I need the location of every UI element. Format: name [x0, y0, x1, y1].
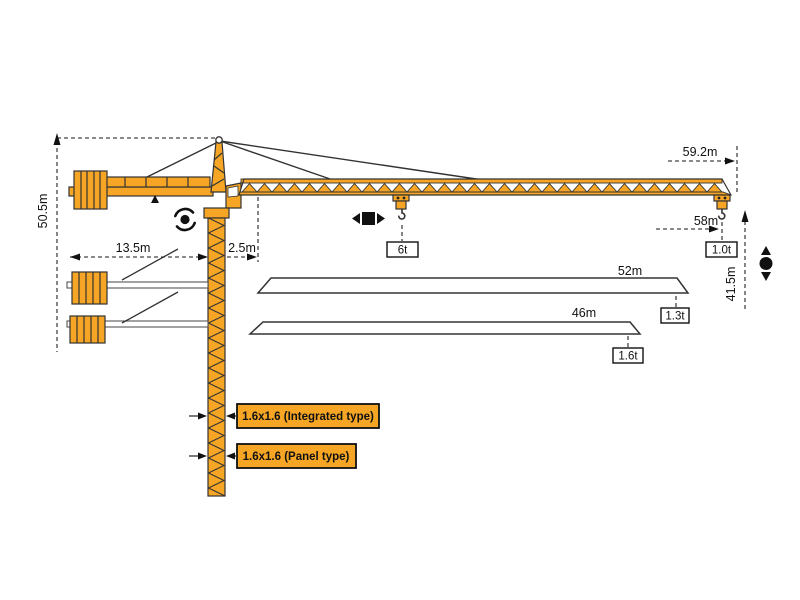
up-arrowhead: [742, 210, 749, 222]
trolley-square: [362, 212, 375, 225]
counterweight-block: [70, 316, 105, 343]
left-arrowhead: [226, 413, 235, 420]
tip-hook: [719, 209, 725, 219]
left-arrowhead: [70, 254, 80, 261]
sheave: [718, 197, 721, 200]
right-arrow: [377, 213, 385, 224]
jib46-tip-load-value: 1.6t: [618, 351, 638, 363]
counterweight-block: [72, 272, 107, 304]
slewing-rotation-icon: [175, 209, 194, 230]
tip-trolley: [714, 195, 730, 201]
trolley-hook-main: [393, 195, 409, 219]
up-arrowhead: [54, 133, 61, 145]
hook-radius-label: 58m: [694, 214, 718, 228]
slewing-turntable: [204, 208, 229, 218]
jib-lattice: [242, 183, 722, 192]
max-load-value: 6t: [398, 245, 408, 257]
slewing-arc-top: [175, 209, 193, 216]
mast-integrated-label: 1.6x1.6 (Integrated type): [242, 411, 374, 423]
jib-option-52m: [258, 278, 688, 293]
apex-pin: [216, 137, 222, 143]
sheave: [403, 197, 406, 200]
slewing-dot: [180, 215, 189, 224]
jib-tie-rod-inner: [220, 141, 333, 180]
counterweight-block: [74, 171, 107, 209]
main-hook: [399, 209, 405, 219]
sheave: [724, 197, 727, 200]
right-arrowhead: [198, 453, 207, 460]
jib52-bar: [258, 278, 688, 293]
tip-hook-block: [717, 201, 727, 209]
right-arrowhead: [198, 254, 208, 261]
cat-head-tower: [211, 142, 226, 192]
trolley-travel-icon: [352, 212, 385, 225]
jib46-length-label: 46m: [572, 306, 596, 320]
mast-panel-label: 1.6x1.6 (Panel type): [243, 451, 350, 463]
leader-line: [122, 292, 178, 323]
slewing-arc-bottom: [177, 223, 195, 230]
crane-diagram-svg: 6t 1.0t 1.3t 1.6t 1.6x1.6 (Integrated ty…: [0, 0, 800, 600]
total-height-label: 50.5m: [36, 194, 50, 229]
hoist-icon: [760, 246, 773, 281]
cab-window: [228, 186, 238, 197]
tie-rods: [147, 141, 483, 180]
hook-height-label: 41.5m: [724, 267, 738, 302]
mast-lattice: [208, 218, 225, 496]
jib-tie-rod-outer: [220, 141, 483, 180]
tip-radius-label: 59.2m: [683, 145, 718, 159]
tower-mast: [208, 218, 225, 496]
counter-jib-platform: [105, 177, 210, 187]
counterweight-option-1: [67, 249, 208, 304]
counter-jib: [69, 171, 213, 209]
jib-option-46m: [250, 322, 640, 334]
root-offset-label: 2.5m: [228, 241, 256, 255]
counter-jib-tie-rod: [147, 141, 220, 177]
jib46-bar: [250, 322, 640, 334]
up-arrow: [761, 246, 771, 255]
tip-load-value: 1.0t: [712, 245, 732, 257]
jib52-tip-load-value: 1.3t: [665, 311, 685, 323]
main-jib: [239, 179, 731, 195]
right-arrowhead: [198, 413, 207, 420]
sheave: [397, 197, 400, 200]
left-arrow: [352, 213, 360, 224]
right-arrowhead: [725, 158, 735, 165]
main-trolley: [393, 195, 409, 201]
jib52-length-label: 52m: [618, 264, 642, 278]
tail-radius-label: 13.5m: [116, 241, 151, 255]
value-boxes: 6t 1.0t 1.3t 1.6t: [387, 242, 737, 363]
crane-load-diagram: 6t 1.0t 1.3t 1.6t 1.6x1.6 (Integrated ty…: [0, 0, 800, 600]
down-arrow: [761, 272, 771, 281]
left-arrowhead: [226, 453, 235, 460]
main-hook-block: [396, 201, 406, 209]
hoist-circle: [760, 257, 773, 270]
